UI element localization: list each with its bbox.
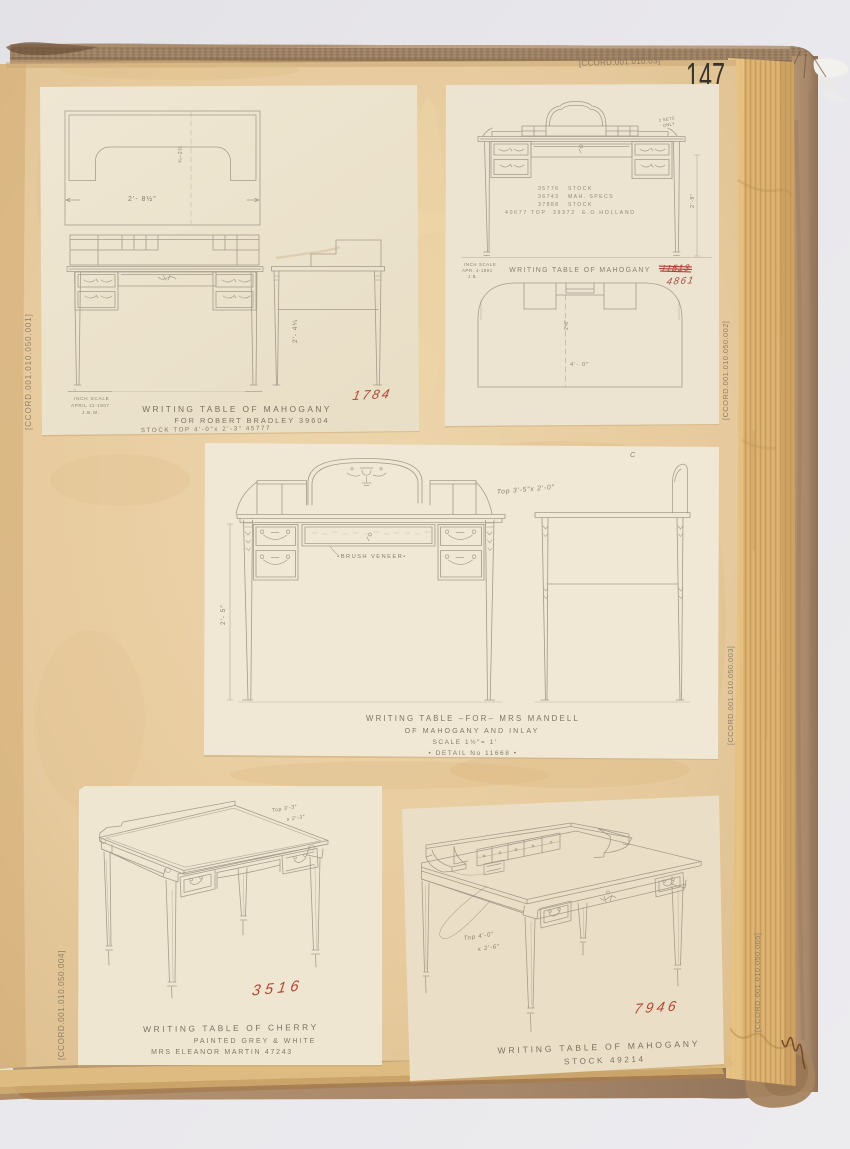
svg-text:INCH SCALE: INCH SCALE [74,396,110,401]
svg-text:J.B.: J.B. [468,274,478,279]
svg-text:40677 TOP 39372 E.O.HOLLAND: 40677 TOP 39372 E.O.HOLLAND [505,210,636,216]
svg-text:SCALE 1½″= 1′: SCALE 1½″= 1′ [432,738,497,746]
svg-text:[CCORD.001.010.050.005]: [CCORD.001.010.050.005] [753,933,762,1032]
svg-text:2′-9″: 2′-9″ [690,193,696,208]
svg-text:2′-0″: 2′-0″ [564,320,570,330]
svg-text:APR. 4-1891: APR. 4-1891 [462,268,493,273]
svg-text:MRS ELEANOR MARTIN 47243: MRS ELEANOR MARTIN 47243 [151,1049,293,1056]
svg-text:PAINTED GREY & WHITE: PAINTED GREY & WHITE [194,1038,317,1045]
svg-text:[CCORD.001.010.050.002]: [CCORD.001.010.050.002] [721,321,730,420]
svg-text:WRITING TABLE –FOR– MRS MANDEL: WRITING TABLE –FOR– MRS MANDELL [366,714,580,723]
svg-text:1784: 1784 [351,386,393,403]
svg-text:•BRUSH VENEER•: •BRUSH VENEER• [337,554,406,560]
svg-text:C: C [630,450,636,459]
svg-text:FOR ROBERT BRADLEY 39604: FOR ROBERT BRADLEY 39604 [174,416,329,425]
svg-text:4′- 0″: 4′- 0″ [570,362,589,368]
svg-text:WRITING TABLE OF MAHOGANY: WRITING TABLE OF MAHOGANY [142,404,332,414]
svg-text:36743 MAH. SPECS: 36743 MAH. SPECS [538,194,614,200]
svg-text:¾–2¼: ¾–2¼ [178,146,184,163]
svg-text:J.B.M.: J.B.M. [82,410,100,415]
svg-text:35776 STOCK: 35776 STOCK [538,186,593,192]
svg-text:4861: 4861 [665,275,695,287]
svg-text:OF MAHOGANY AND INLAY: OF MAHOGANY AND INLAY [405,726,540,735]
svg-text:2′- 8½″: 2′- 8½″ [128,195,157,203]
svg-text:[CCORD.001.010.050.003]: [CCORD.001.010.050.003] [726,646,735,745]
svg-text:37888 STOCK: 37888 STOCK [538,202,593,208]
svg-text:WRITING TABLE OF MAHOGANY: WRITING TABLE OF MAHOGANY [509,267,651,274]
svg-text:[CCORD.001.010.050.004]: [CCORD.001.010.050.004] [57,950,66,1060]
svg-text:INCH SCALE: INCH SCALE [464,262,496,267]
svg-text:7946: 7946 [633,998,681,1017]
svg-text:APRIL 11-1907: APRIL 11-1907 [71,403,110,408]
svg-text:• DETAIL No 11668 •: • DETAIL No 11668 • [428,750,517,757]
svg-text:2′- 4¼: 2′- 4¼ [292,319,299,343]
svg-text:[CCORD.001.010.050.001]: [CCORD.001.010.050.001] [24,313,33,430]
svg-text:2′- 5″: 2′- 5″ [220,604,227,625]
